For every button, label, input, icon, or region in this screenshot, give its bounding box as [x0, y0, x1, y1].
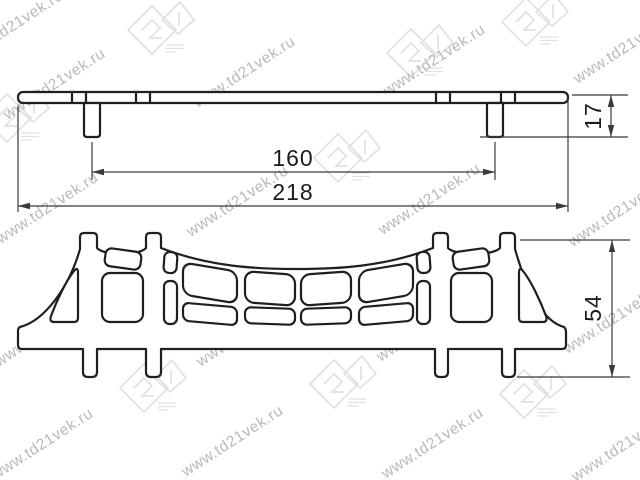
td21vek-logo-watermark [502, 0, 568, 46]
watermark-text: www.td21vek.ru [178, 402, 287, 480]
watermark-text: www.td21vek.ru [565, 172, 640, 251]
dim-label-54: 54 [580, 294, 606, 322]
td21vek-logo-watermark [387, 25, 453, 77]
top-view [18, 92, 568, 137]
top-view-bar [18, 92, 568, 103]
watermark-text: www.td21vek.ru [570, 9, 640, 88]
top-view-right-post [487, 103, 503, 137]
technical-drawing-canvas: www.td21vek.ruwww.td21vek.ruwww.td21vek.… [0, 0, 640, 480]
top-view-left-post [84, 103, 100, 137]
dim-label-17: 17 [580, 102, 606, 130]
watermark-text: www.td21vek.ru [0, 0, 67, 66]
td21vek-logo-watermark [128, 2, 194, 54]
watermark-text: www.td21vek.ru [568, 407, 640, 480]
dim-label-218: 218 [272, 179, 313, 205]
dimension-160: 160 [92, 142, 495, 180]
drawing-svg: www.td21vek.ruwww.td21vek.ruwww.td21vek.… [0, 0, 640, 480]
watermark-text: www.td21vek.ru [380, 21, 489, 100]
dim-label-160: 160 [272, 145, 313, 171]
td21vek-logo-watermark [310, 356, 376, 408]
td21vek-logo-watermark [314, 130, 380, 182]
front-view [18, 233, 566, 377]
watermark-text: www.td21vek.ru [0, 405, 97, 480]
watermark-text: www.td21vek.ru [378, 404, 487, 480]
